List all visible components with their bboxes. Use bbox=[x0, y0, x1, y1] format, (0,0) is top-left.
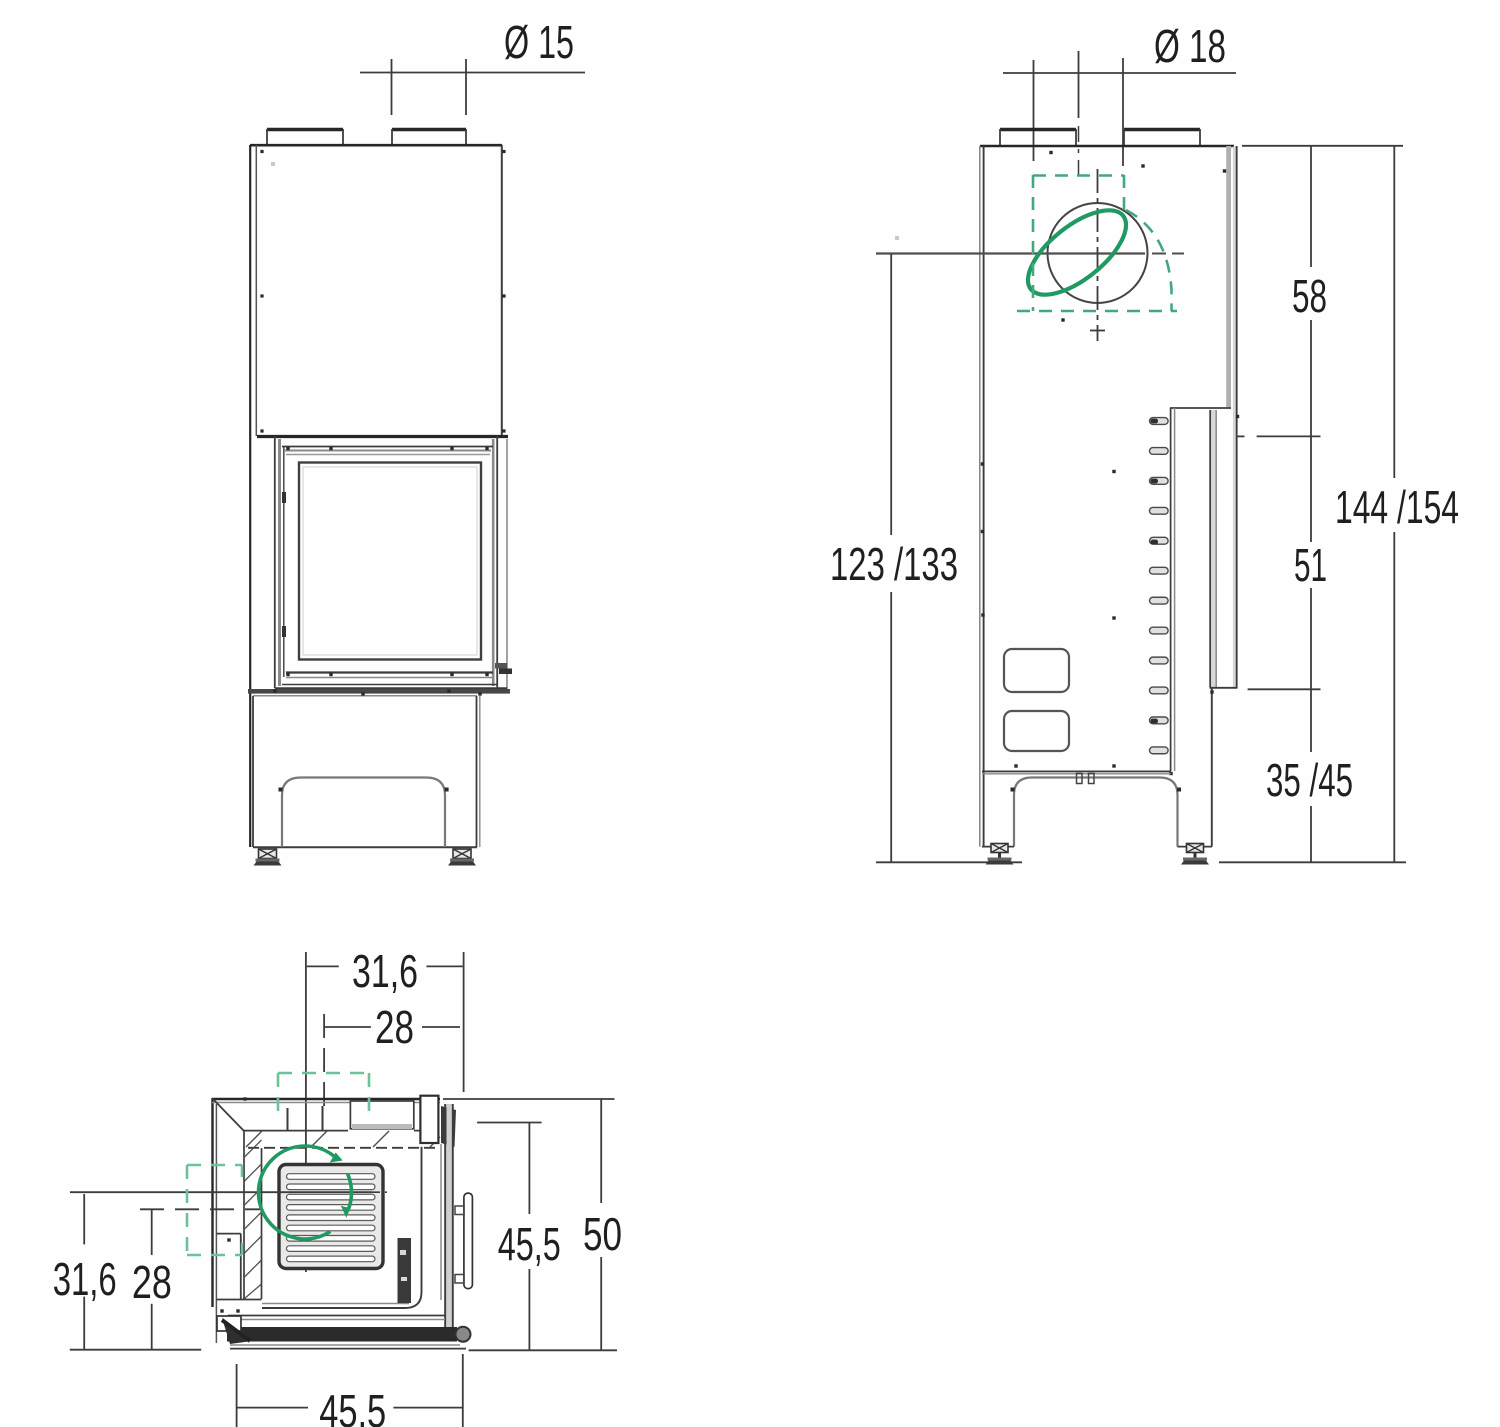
svg-text:Ø 18: Ø 18 bbox=[1154, 20, 1226, 72]
svg-text:45,5: 45,5 bbox=[319, 1385, 386, 1427]
svg-text:45,5: 45,5 bbox=[498, 1218, 561, 1270]
svg-text:51: 51 bbox=[1294, 539, 1327, 591]
svg-text:28: 28 bbox=[375, 1001, 414, 1053]
svg-text:58: 58 bbox=[1292, 270, 1327, 322]
svg-text:28: 28 bbox=[132, 1256, 172, 1308]
svg-text:123 /133: 123 /133 bbox=[830, 538, 958, 590]
svg-text:144 /154: 144 /154 bbox=[1335, 481, 1459, 533]
svg-text:35 /45: 35 /45 bbox=[1266, 754, 1353, 806]
svg-text:50: 50 bbox=[583, 1208, 622, 1260]
svg-text:31,6: 31,6 bbox=[53, 1253, 117, 1305]
svg-text:Ø 15: Ø 15 bbox=[504, 16, 574, 68]
svg-text:31,6: 31,6 bbox=[352, 945, 418, 997]
